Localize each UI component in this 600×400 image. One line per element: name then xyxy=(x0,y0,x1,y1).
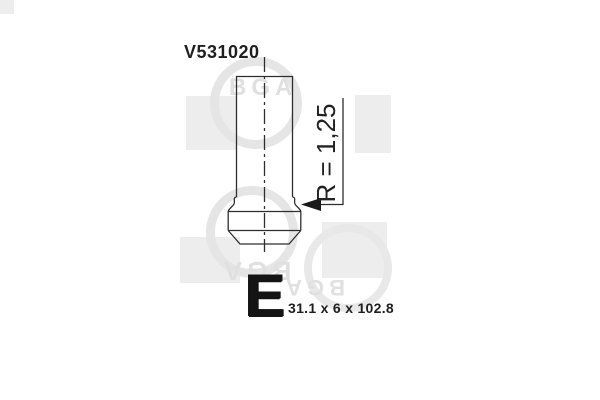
valve-dimensions: 31.1 x 6 x 102.8 xyxy=(288,301,394,315)
valve-groove-left xyxy=(228,197,236,212)
part-number: V531020 xyxy=(184,43,260,61)
valve-groove-right xyxy=(293,197,301,212)
valve-size-class-letter: E xyxy=(245,266,285,326)
groove-radius-annotation: R = 1,25 xyxy=(313,103,339,202)
valve-catalog-image: BGA BGA BGA V531020 R = 1,25 E 31.1 x 6 … xyxy=(0,0,600,400)
valve-line-drawing xyxy=(0,0,600,400)
